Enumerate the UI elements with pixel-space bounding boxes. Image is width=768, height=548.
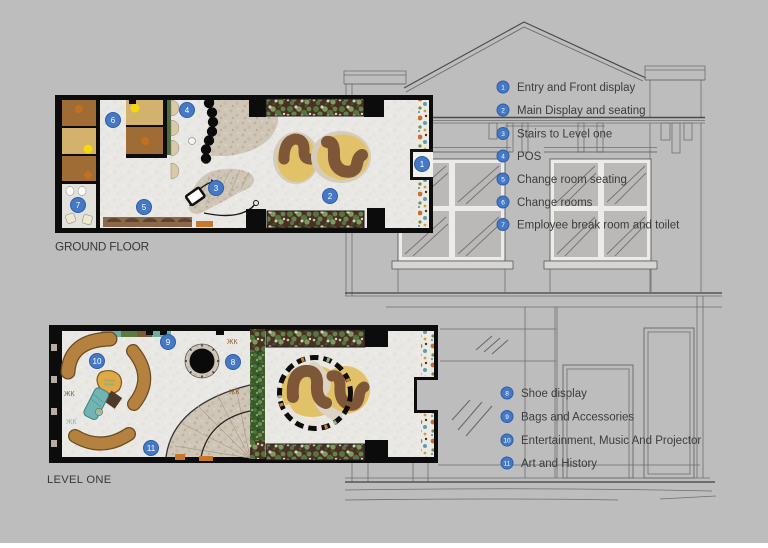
svg-text:ЖК: ЖК [229, 389, 240, 396]
svg-text:8: 8 [505, 391, 509, 398]
svg-text:3: 3 [214, 184, 219, 193]
svg-text:7: 7 [501, 222, 505, 229]
svg-text:Shoe display: Shoe display [521, 388, 587, 400]
svg-text:11: 11 [147, 444, 156, 453]
svg-text:5: 5 [501, 177, 505, 184]
svg-text:ЖК: ЖК [64, 391, 75, 398]
svg-text:4: 4 [501, 154, 505, 161]
svg-text:Employee break room and toilet: Employee break room and toilet [517, 220, 680, 232]
svg-text:Entertainment, Music And Proje: Entertainment, Music And Projector [521, 435, 701, 447]
svg-text:ЖК: ЖК [227, 339, 238, 346]
svg-text:10: 10 [93, 357, 102, 366]
svg-text:2: 2 [328, 192, 333, 201]
svg-text:Change room seating: Change room seating [517, 174, 627, 186]
svg-text:6: 6 [111, 116, 116, 125]
svg-text:2: 2 [501, 108, 505, 115]
svg-text:9: 9 [505, 414, 509, 421]
svg-text:LEVEL ONE: LEVEL ONE [47, 474, 111, 486]
svg-text:6: 6 [501, 200, 505, 207]
svg-text:Art and History: Art and History [521, 458, 597, 470]
svg-text:3: 3 [501, 131, 505, 138]
svg-text:Entry and Front display: Entry and Front display [517, 82, 636, 94]
svg-text:9: 9 [166, 338, 171, 347]
svg-text:POS: POS [517, 151, 542, 163]
svg-text:11: 11 [504, 461, 511, 468]
svg-text:Stairs to Level one: Stairs to Level one [517, 129, 612, 141]
svg-text:ЖК: ЖК [66, 419, 77, 426]
svg-text:1: 1 [420, 160, 425, 169]
svg-text:1: 1 [501, 85, 505, 92]
svg-text:10: 10 [503, 438, 511, 445]
svg-text:5: 5 [142, 203, 147, 212]
svg-text:Main Display and seating: Main Display and seating [517, 105, 646, 117]
svg-text:GROUND FLOOR: GROUND FLOOR [55, 240, 149, 254]
svg-text:7: 7 [76, 201, 81, 210]
svg-text:4: 4 [185, 106, 190, 115]
svg-text:8: 8 [231, 358, 236, 367]
svg-text:Bags and Accessories: Bags and Accessories [521, 412, 634, 424]
svg-text:Change rooms: Change rooms [517, 197, 593, 209]
